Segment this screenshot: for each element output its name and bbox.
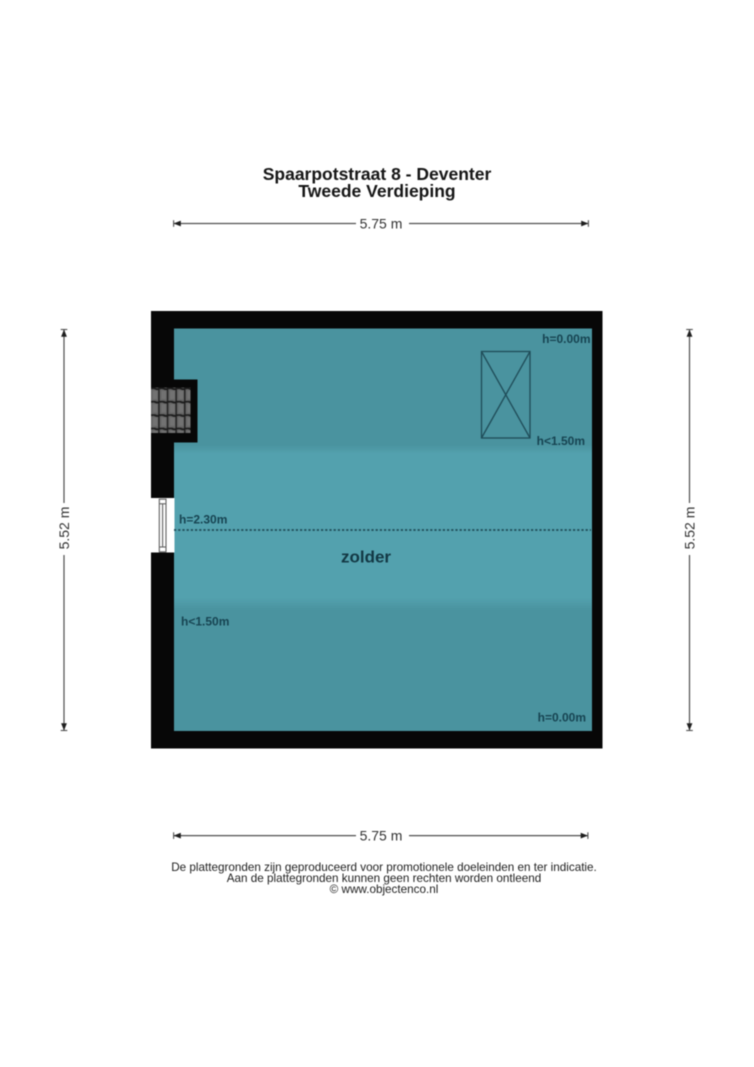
- svg-text:Tweede Verdieping: Tweede Verdieping: [298, 181, 455, 201]
- svg-text:© www.objectenco.nl: © www.objectenco.nl: [330, 883, 439, 896]
- svg-text:h<1.50m: h<1.50m: [181, 614, 229, 628]
- svg-text:h<1.50m: h<1.50m: [537, 434, 585, 448]
- svg-text:h=0.00m: h=0.00m: [542, 332, 590, 346]
- svg-text:5.52 m: 5.52 m: [56, 507, 72, 550]
- svg-text:h=2.30m: h=2.30m: [179, 513, 227, 527]
- svg-text:5.75 m: 5.75 m: [360, 215, 403, 231]
- svg-text:5.75 m: 5.75 m: [360, 827, 403, 843]
- svg-text:5.52 m: 5.52 m: [681, 507, 697, 550]
- svg-text:zolder: zolder: [341, 548, 391, 567]
- svg-text:h=0.00m: h=0.00m: [538, 711, 586, 725]
